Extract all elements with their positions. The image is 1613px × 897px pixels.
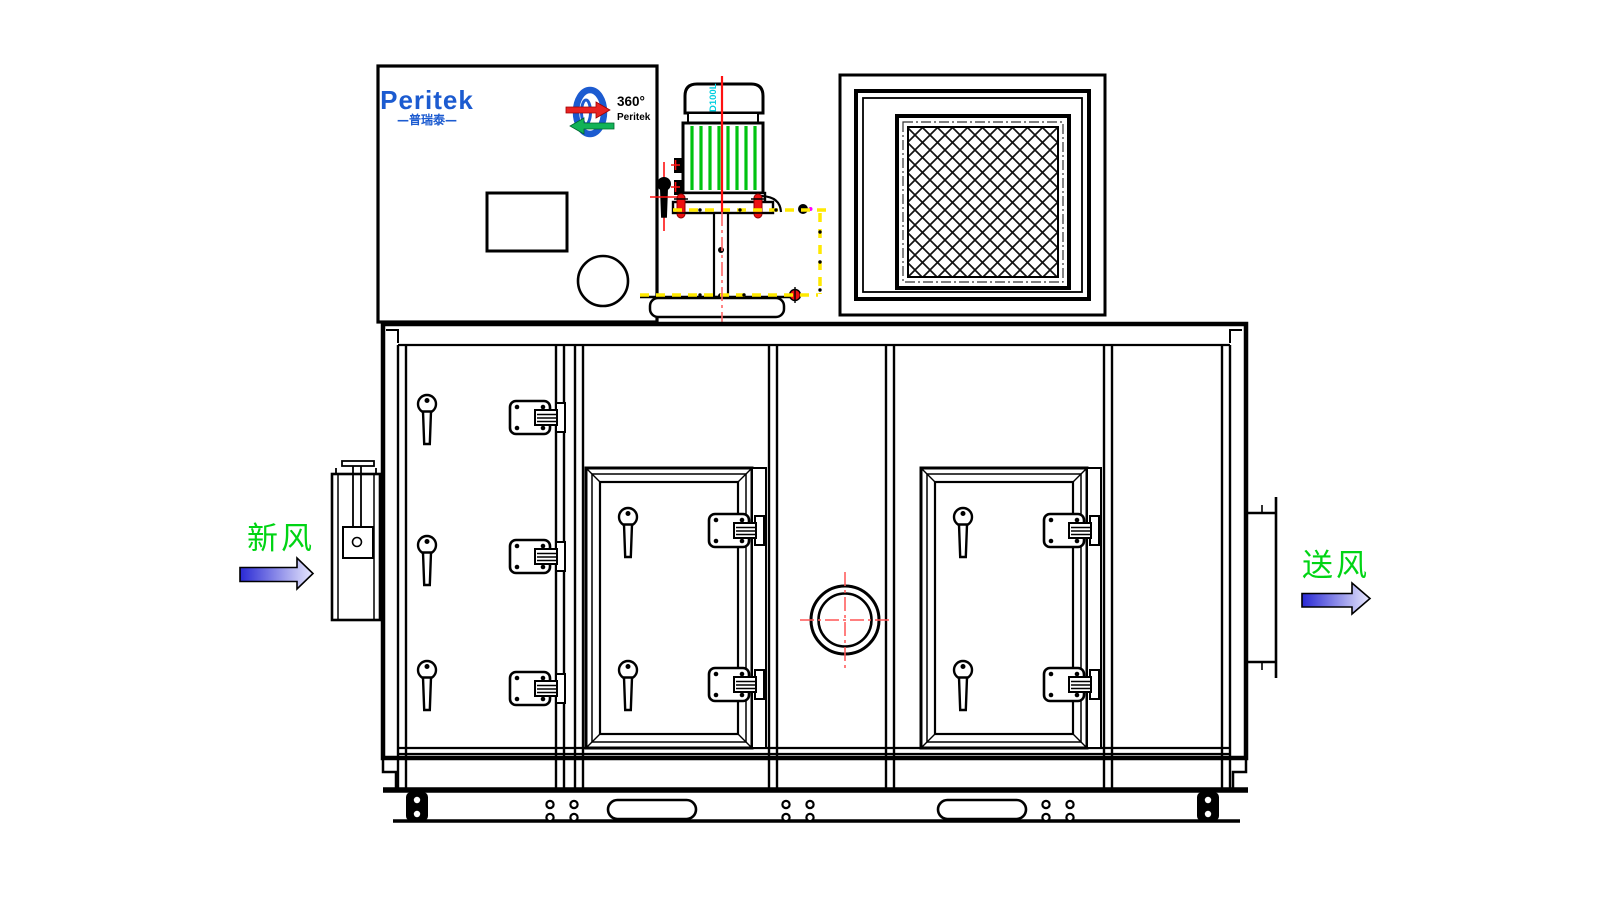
fresh-air-arrow-icon [240,558,313,589]
door-latch [1044,668,1099,701]
main-cabinet [383,324,1246,788]
base-skid [383,758,1248,821]
peritek-logo-text: Peritek [380,85,474,115]
drawing-canvas: Peritek —普瑞泰— 360° Peritek [0,0,1613,897]
unit-drawing: Peritek —普瑞泰— 360° Peritek [0,0,1613,897]
damper-handle-bar [342,461,374,466]
supply-air-arrow-icon [1302,583,1370,614]
inlet-damper [332,461,380,620]
fresh-air-label: 新风 [247,521,315,557]
top-section: Peritek —普瑞泰— 360° Peritek [378,66,1105,330]
door-latch [1044,514,1099,547]
hidden-duct-outline [640,208,830,296]
access-door-left [586,468,766,748]
motor-model-label: D100L [708,83,719,112]
door-hinge-strip [752,468,766,748]
panel-latch [510,672,565,705]
filter-grille-box [840,75,1105,315]
motor-cap [685,84,763,113]
panel-latch [510,401,565,434]
skid-clamp-left [406,792,428,821]
outlet-flange [1246,497,1276,678]
door-latch [709,514,764,547]
control-display-window [487,193,567,251]
forklift-slot [938,800,1026,819]
supply-air-label: 送风 [1302,548,1370,584]
control-knob [578,256,628,306]
forklift-slot [608,800,696,819]
rotor-brand-text: Peritek [617,112,651,123]
supply-air-callout: 送风 [1302,548,1370,614]
skid-clamp-right [1197,792,1219,821]
door-latch [709,668,764,701]
rotor-degree-text: 360° [617,94,645,109]
access-door-right [921,468,1101,748]
panel-latch [510,540,565,573]
door-hinge-strip [1087,468,1101,748]
peritek-logo-subtitle-cn: —普瑞泰— [397,112,457,127]
fresh-air-callout: 新风 [240,521,315,589]
filter-mesh [908,127,1058,277]
